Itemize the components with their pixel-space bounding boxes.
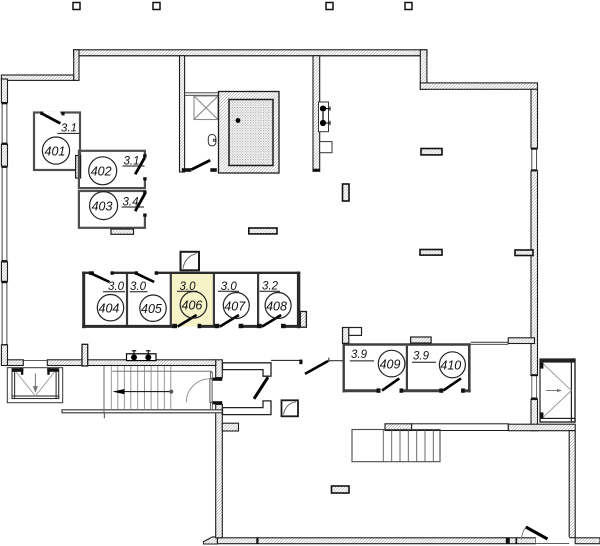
svg-text:408: 408	[266, 299, 287, 313]
svg-text:3.0: 3.0	[130, 281, 147, 293]
svg-text:406: 406	[182, 299, 203, 313]
svg-text:404: 404	[99, 302, 120, 316]
svg-text:3.2: 3.2	[262, 281, 279, 293]
svg-text:401: 401	[45, 145, 66, 159]
svg-text:3.9: 3.9	[351, 349, 368, 361]
svg-text:3.9: 3.9	[413, 351, 430, 363]
svg-text:402: 402	[91, 165, 112, 179]
svg-text:3.0: 3.0	[108, 281, 125, 293]
svg-text:403: 403	[92, 200, 113, 214]
svg-text:410: 410	[440, 359, 461, 373]
svg-text:409: 409	[380, 358, 401, 372]
svg-text:405: 405	[141, 302, 162, 316]
svg-text:407: 407	[224, 299, 246, 313]
svg-text:3.1: 3.1	[61, 122, 77, 134]
